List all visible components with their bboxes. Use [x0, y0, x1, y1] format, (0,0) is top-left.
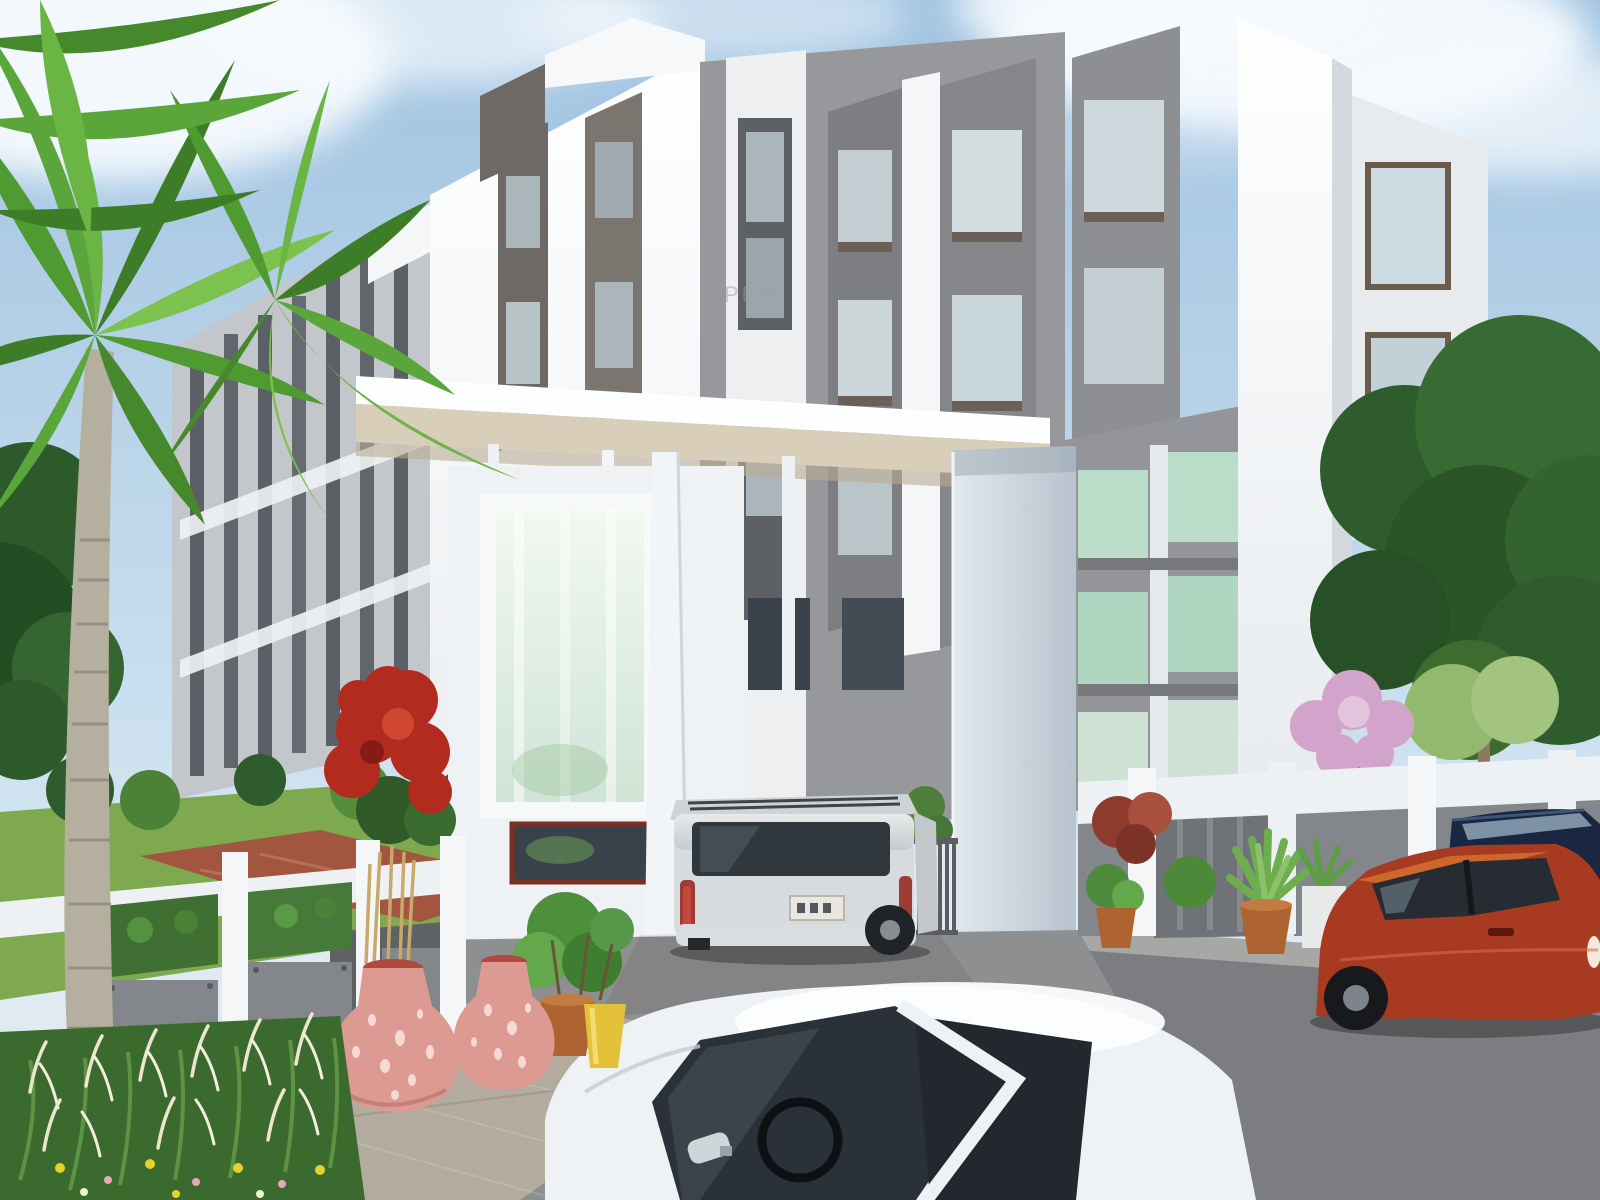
canopy-column [782, 456, 795, 708]
watermark: PRO [724, 282, 781, 307]
glass-feature-panel [480, 494, 660, 818]
architectural-render: PRO [0, 0, 1600, 1200]
white-hatchback-foreground [545, 982, 1256, 1200]
entrance-pillar-right [952, 446, 1076, 956]
ornamental-grass [0, 1014, 365, 1200]
silver-suv [670, 794, 938, 965]
building-right-wing [1065, 402, 1262, 812]
